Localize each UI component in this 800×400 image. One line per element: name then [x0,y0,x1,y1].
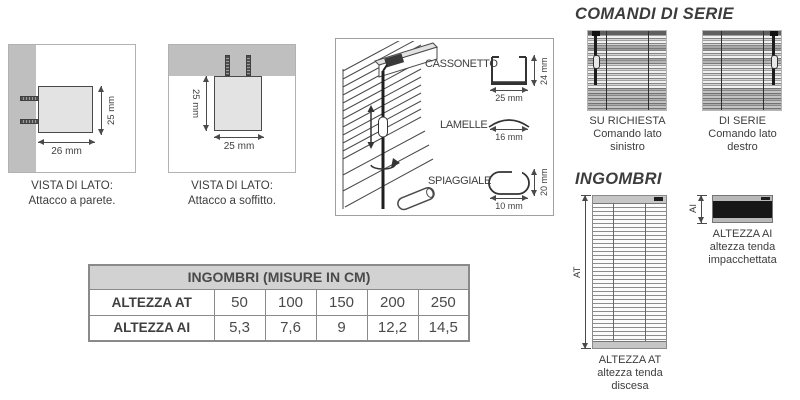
control-wand-icon [594,33,597,85]
table-cell: 100 [265,289,316,315]
height-dimension-label: 20 mm [539,167,549,197]
table-title: INGOMBRI (MISURE IN CM) [89,265,469,289]
ceiling-mount-caption: VISTA DI LATO: Attacco a soffitto. [168,179,296,209]
screw-icon [20,96,39,101]
comandi-section-title: COMANDI DI SERIE [575,5,734,24]
blind-extended-image [592,195,667,349]
table-cell: 50 [214,289,265,315]
caption-line: VISTA DI LATO: [8,179,136,194]
caption-line: Attacco a soffitto. [168,194,296,209]
caption-line: altezza tenda [570,367,690,380]
blind-left-control-image [588,31,666,110]
product-spec-sheet: 25 mm 26 mm VISTA DI LATO: Attacco a par… [0,0,800,400]
height-dimension-label: 24 mm [539,53,549,89]
width-dimension-line [490,198,528,199]
table-row: ALTEZZA AT 50 100 150 200 250 [89,289,469,315]
table-cell: 7,6 [265,315,316,341]
spiaggiale-label: SPIAGGIALE [428,175,491,187]
table-cell: 12,2 [367,315,418,341]
packed-blind-caption: ALTEZZA AI altezza tenda impacchettata [685,228,800,267]
caption-line: DI SERIE [685,115,800,128]
blind-packed-image [712,195,773,223]
table-row: ALTEZZA AI 5,3 7,6 9 12,2 14,5 [89,315,469,341]
headbox-side-view [38,86,93,133]
width-dimension-label: 25 mm [480,93,538,103]
headrail-detail [761,197,770,200]
cassonetto-profile: 25 mm 24 mm [486,53,556,107]
lamelle-profile: 16 mm [486,113,556,147]
table-cell: 9 [316,315,367,341]
width-dimension-label: 25 mm [203,141,275,152]
row-label: ALTEZZA AI [89,315,214,341]
caption-line: impacchettata [685,254,800,267]
caption-line: Comando lato [685,128,800,141]
lamelle-label: LAMELLE [440,119,487,131]
cord-line [645,203,646,342]
caption-line: destro [685,141,800,154]
ceiling-surface [169,45,295,76]
ingombri-section-title: INGOMBRI [575,170,662,189]
cord-line [721,31,722,110]
cord-line [613,203,614,342]
at-dimension-line [585,195,586,349]
table-cell: 250 [418,289,469,315]
height-dimension-line [101,86,102,135]
height-dimension-line [206,76,207,131]
caption-line: VISTA DI LATO: [168,179,296,194]
control-wand-icon [772,33,775,85]
table-cell: 5,3 [214,315,265,341]
caption-line: sinistro [570,141,685,154]
dimensions-table: INGOMBRI (MISURE IN CM) ALTEZZA AT 50 10… [88,264,470,342]
cord-line [606,31,607,110]
caption-line: discesa [570,380,690,393]
wall-mount-diagram: 25 mm 26 mm [8,44,136,173]
width-dimension-label: 16 mm [480,132,538,142]
height-dimension-label: 25 mm [106,86,117,135]
ceiling-mount-diagram: 25 mm 25 mm [168,44,296,173]
table-cell: 150 [316,289,367,315]
height-dimension-line [534,169,535,196]
headbox-side-view [214,76,262,131]
blind-right-control-image [703,31,781,110]
width-dimension-label: 26 mm [27,146,106,157]
cord-line [648,31,649,110]
wall-mount-caption: VISTA DI LATO: Attacco a parete. [8,179,136,209]
width-dimension-line [214,137,264,138]
table-cell: 14,5 [418,315,469,341]
caption-line: SU RICHIESTA [570,115,685,128]
screw-icon [20,119,39,124]
height-dimension-label: 25 mm [190,76,201,131]
screw-icon [225,55,230,76]
at-dimension-label: AT [572,195,583,349]
spiaggiale-profile: 10 mm 20 mm [486,167,556,215]
table-cell: 200 [367,289,418,315]
width-dimension-line [38,142,95,143]
right-control-caption: DI SERIE Comando lato destro [685,115,800,154]
width-dimension-line [490,129,528,130]
row-label: ALTEZZA AT [89,289,214,315]
ai-dimension-line [701,195,702,223]
width-dimension-line [490,90,528,91]
headrail-detail [654,197,663,201]
extended-blind-caption: ALTEZZA AT altezza tenda discesa [570,354,690,393]
caption-line: Attacco a parete. [8,194,136,209]
caption-line: ALTEZZA AT [570,354,690,367]
caption-line: altezza tenda [685,241,800,254]
left-control-caption: SU RICHIESTA Comando lato sinistro [570,115,685,154]
cassonetto-profile-icon [486,53,532,89]
screw-icon [246,55,251,76]
width-dimension-label: 10 mm [480,201,538,211]
spiaggiale-profile-icon [486,167,532,197]
ai-dimension-label: AI [688,193,699,225]
cord-line [763,31,764,110]
components-diagram: CASSONETTO 25 mm 24 mm LAMELLE 16 mm SPI… [335,38,554,216]
caption-line: Comando lato [570,128,685,141]
caption-line: ALTEZZA AI [685,228,800,241]
height-dimension-line [534,55,535,86]
